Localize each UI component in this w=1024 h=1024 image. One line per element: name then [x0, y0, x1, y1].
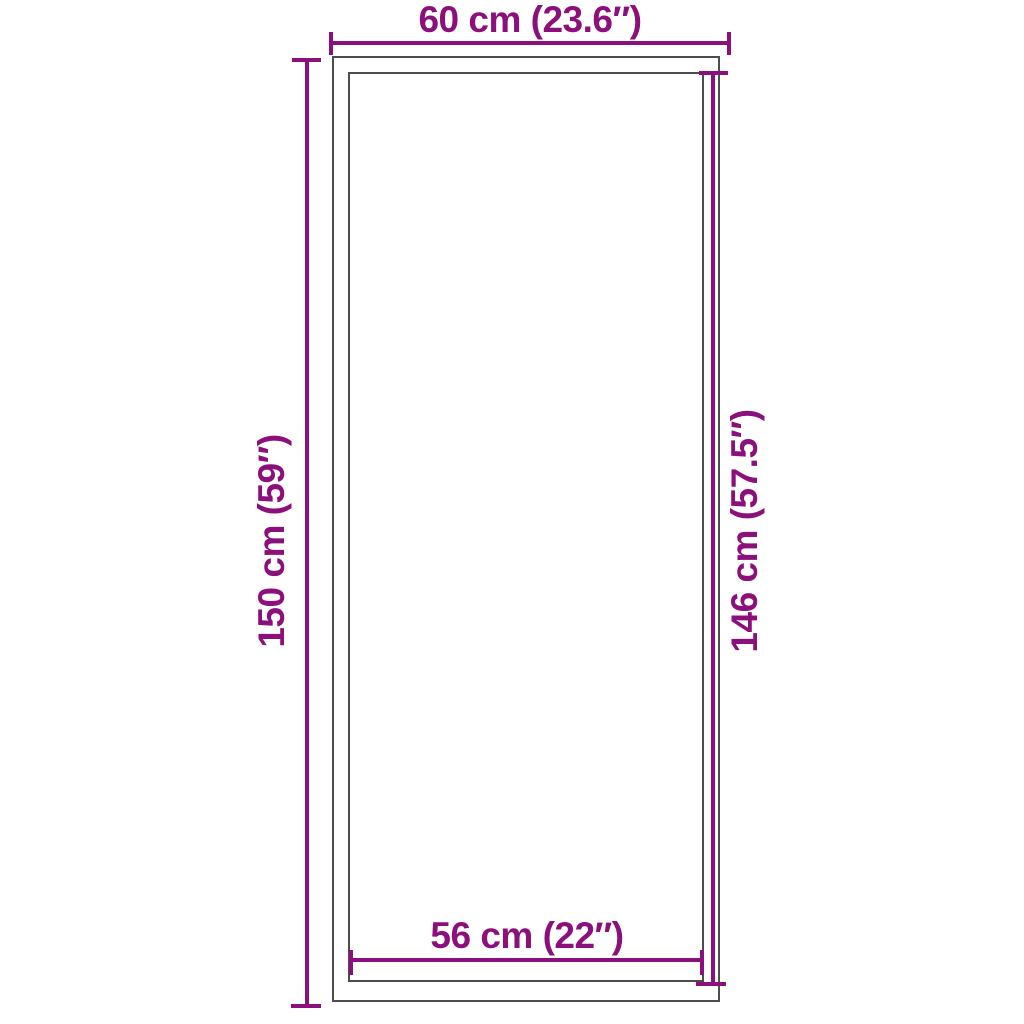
dimension-label-inner-width: 56 cm (22″): [350, 917, 704, 955]
product-outline-inner: [348, 72, 704, 982]
dimension-line-right: [711, 71, 715, 986]
dimension-tick-bottom-right: [700, 950, 704, 975]
dimension-line-left: [305, 58, 309, 1008]
dimension-label-inner-height: 146 cm (57.5″): [724, 409, 766, 652]
dimension-tick-bottom-left: [349, 950, 353, 975]
dimension-tick-left-top: [292, 58, 321, 62]
dimension-tick-right-top: [699, 71, 728, 75]
dimension-diagram: 60 cm (23.6″) 150 cm (59″) 146 cm (57.5″…: [0, 0, 1024, 1024]
dimension-tick-top-left: [329, 32, 333, 55]
dimension-line-top: [329, 41, 731, 45]
dimension-line-bottom: [350, 958, 704, 962]
dimension-label-outer-height: 150 cm (59″): [251, 434, 293, 647]
dimension-tick-right-bottom: [696, 982, 726, 986]
dimension-tick-top-right: [727, 32, 731, 55]
dimension-tick-left-bottom: [291, 1004, 321, 1008]
dimension-label-outer-width: 60 cm (23.6″): [330, 1, 730, 39]
